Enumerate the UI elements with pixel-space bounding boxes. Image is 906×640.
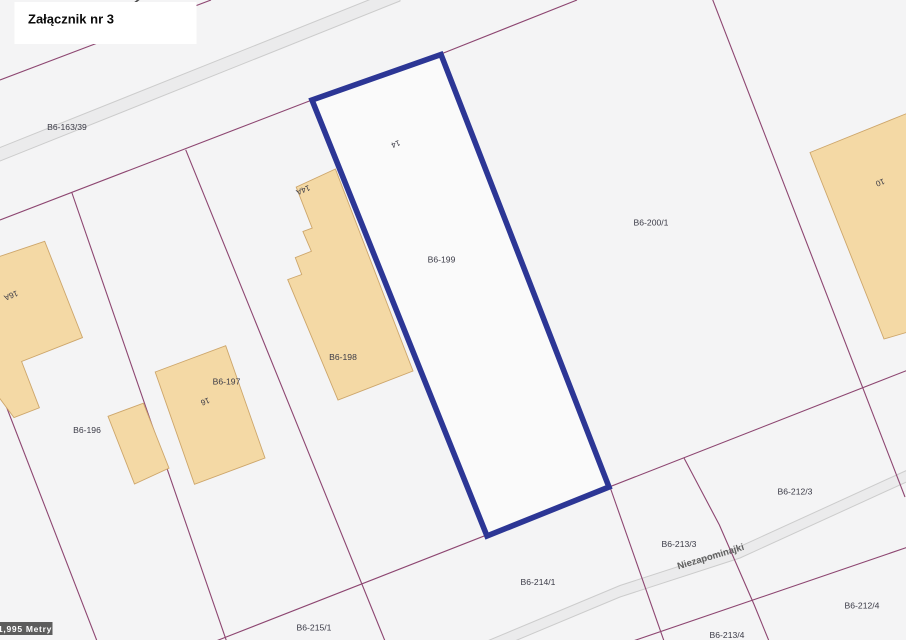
svg-text:B6-212/4: B6-212/4 (845, 601, 880, 611)
svg-text:B6-200/1: B6-200/1 (634, 218, 669, 228)
svg-text:B6-197: B6-197 (213, 377, 241, 387)
svg-text:B6-213/3: B6-213/3 (662, 539, 697, 549)
svg-text:B6-198: B6-198 (329, 352, 357, 362)
svg-text:B6-213/4: B6-213/4 (710, 630, 745, 640)
svg-text:B6-215/1: B6-215/1 (297, 623, 332, 633)
svg-text:B6-212/3: B6-212/3 (778, 487, 813, 497)
svg-text:B6-163/39: B6-163/39 (47, 122, 87, 132)
svg-text:1,995 Metry: 1,995 Metry (0, 624, 52, 634)
svg-text:Załącznik nr 3: Załącznik nr 3 (28, 12, 114, 27)
svg-text:B6-214/1: B6-214/1 (521, 577, 556, 587)
svg-text:B6-196: B6-196 (73, 425, 101, 435)
svg-text:B6-199: B6-199 (428, 255, 456, 265)
